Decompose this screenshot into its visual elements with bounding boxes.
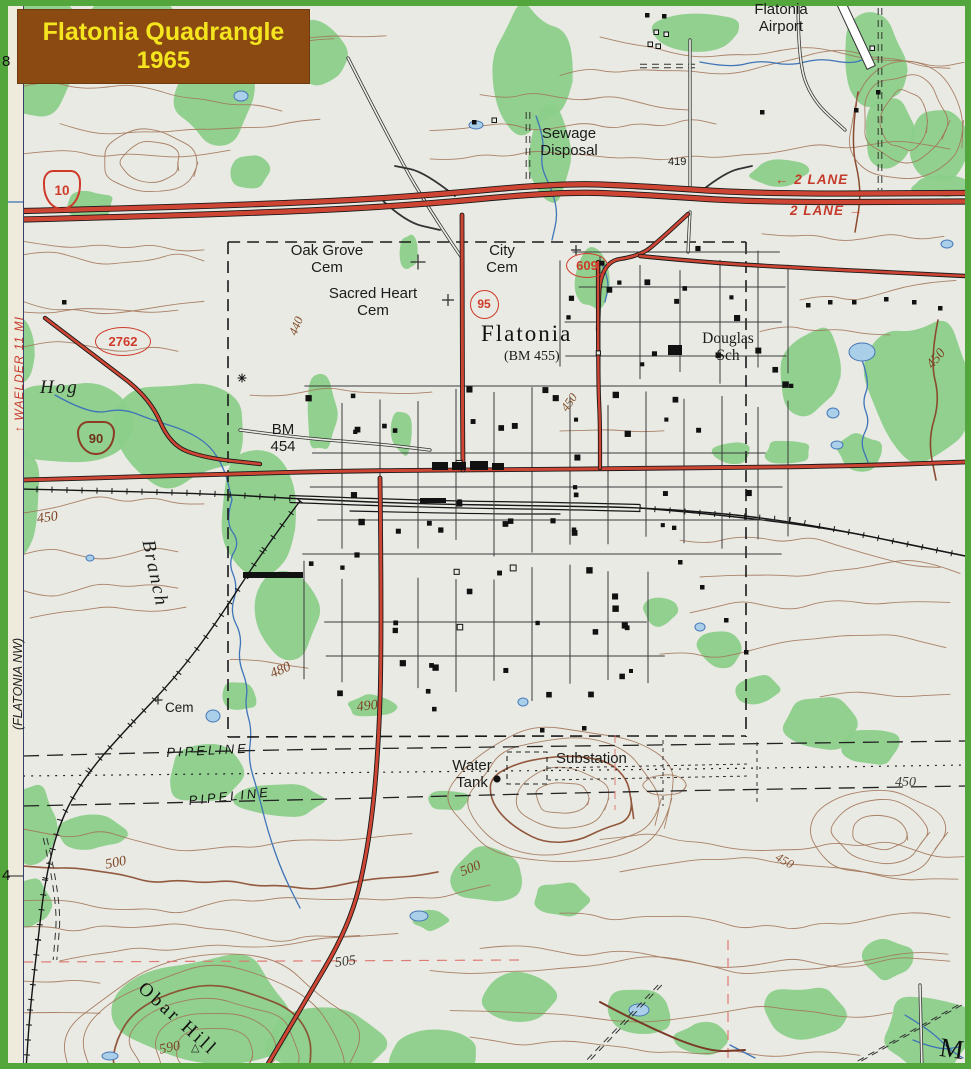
map-title-box: Flatonia Quadrangle 1965 — [17, 9, 310, 84]
topo-map-canvas — [0, 0, 971, 1069]
map-title-line1: Flatonia Quadrangle — [43, 17, 285, 47]
topo-map-page: Flatonia AirportSewage Disposal419← 2 LA… — [0, 0, 971, 1069]
map-title-year: 1965 — [137, 47, 190, 76]
